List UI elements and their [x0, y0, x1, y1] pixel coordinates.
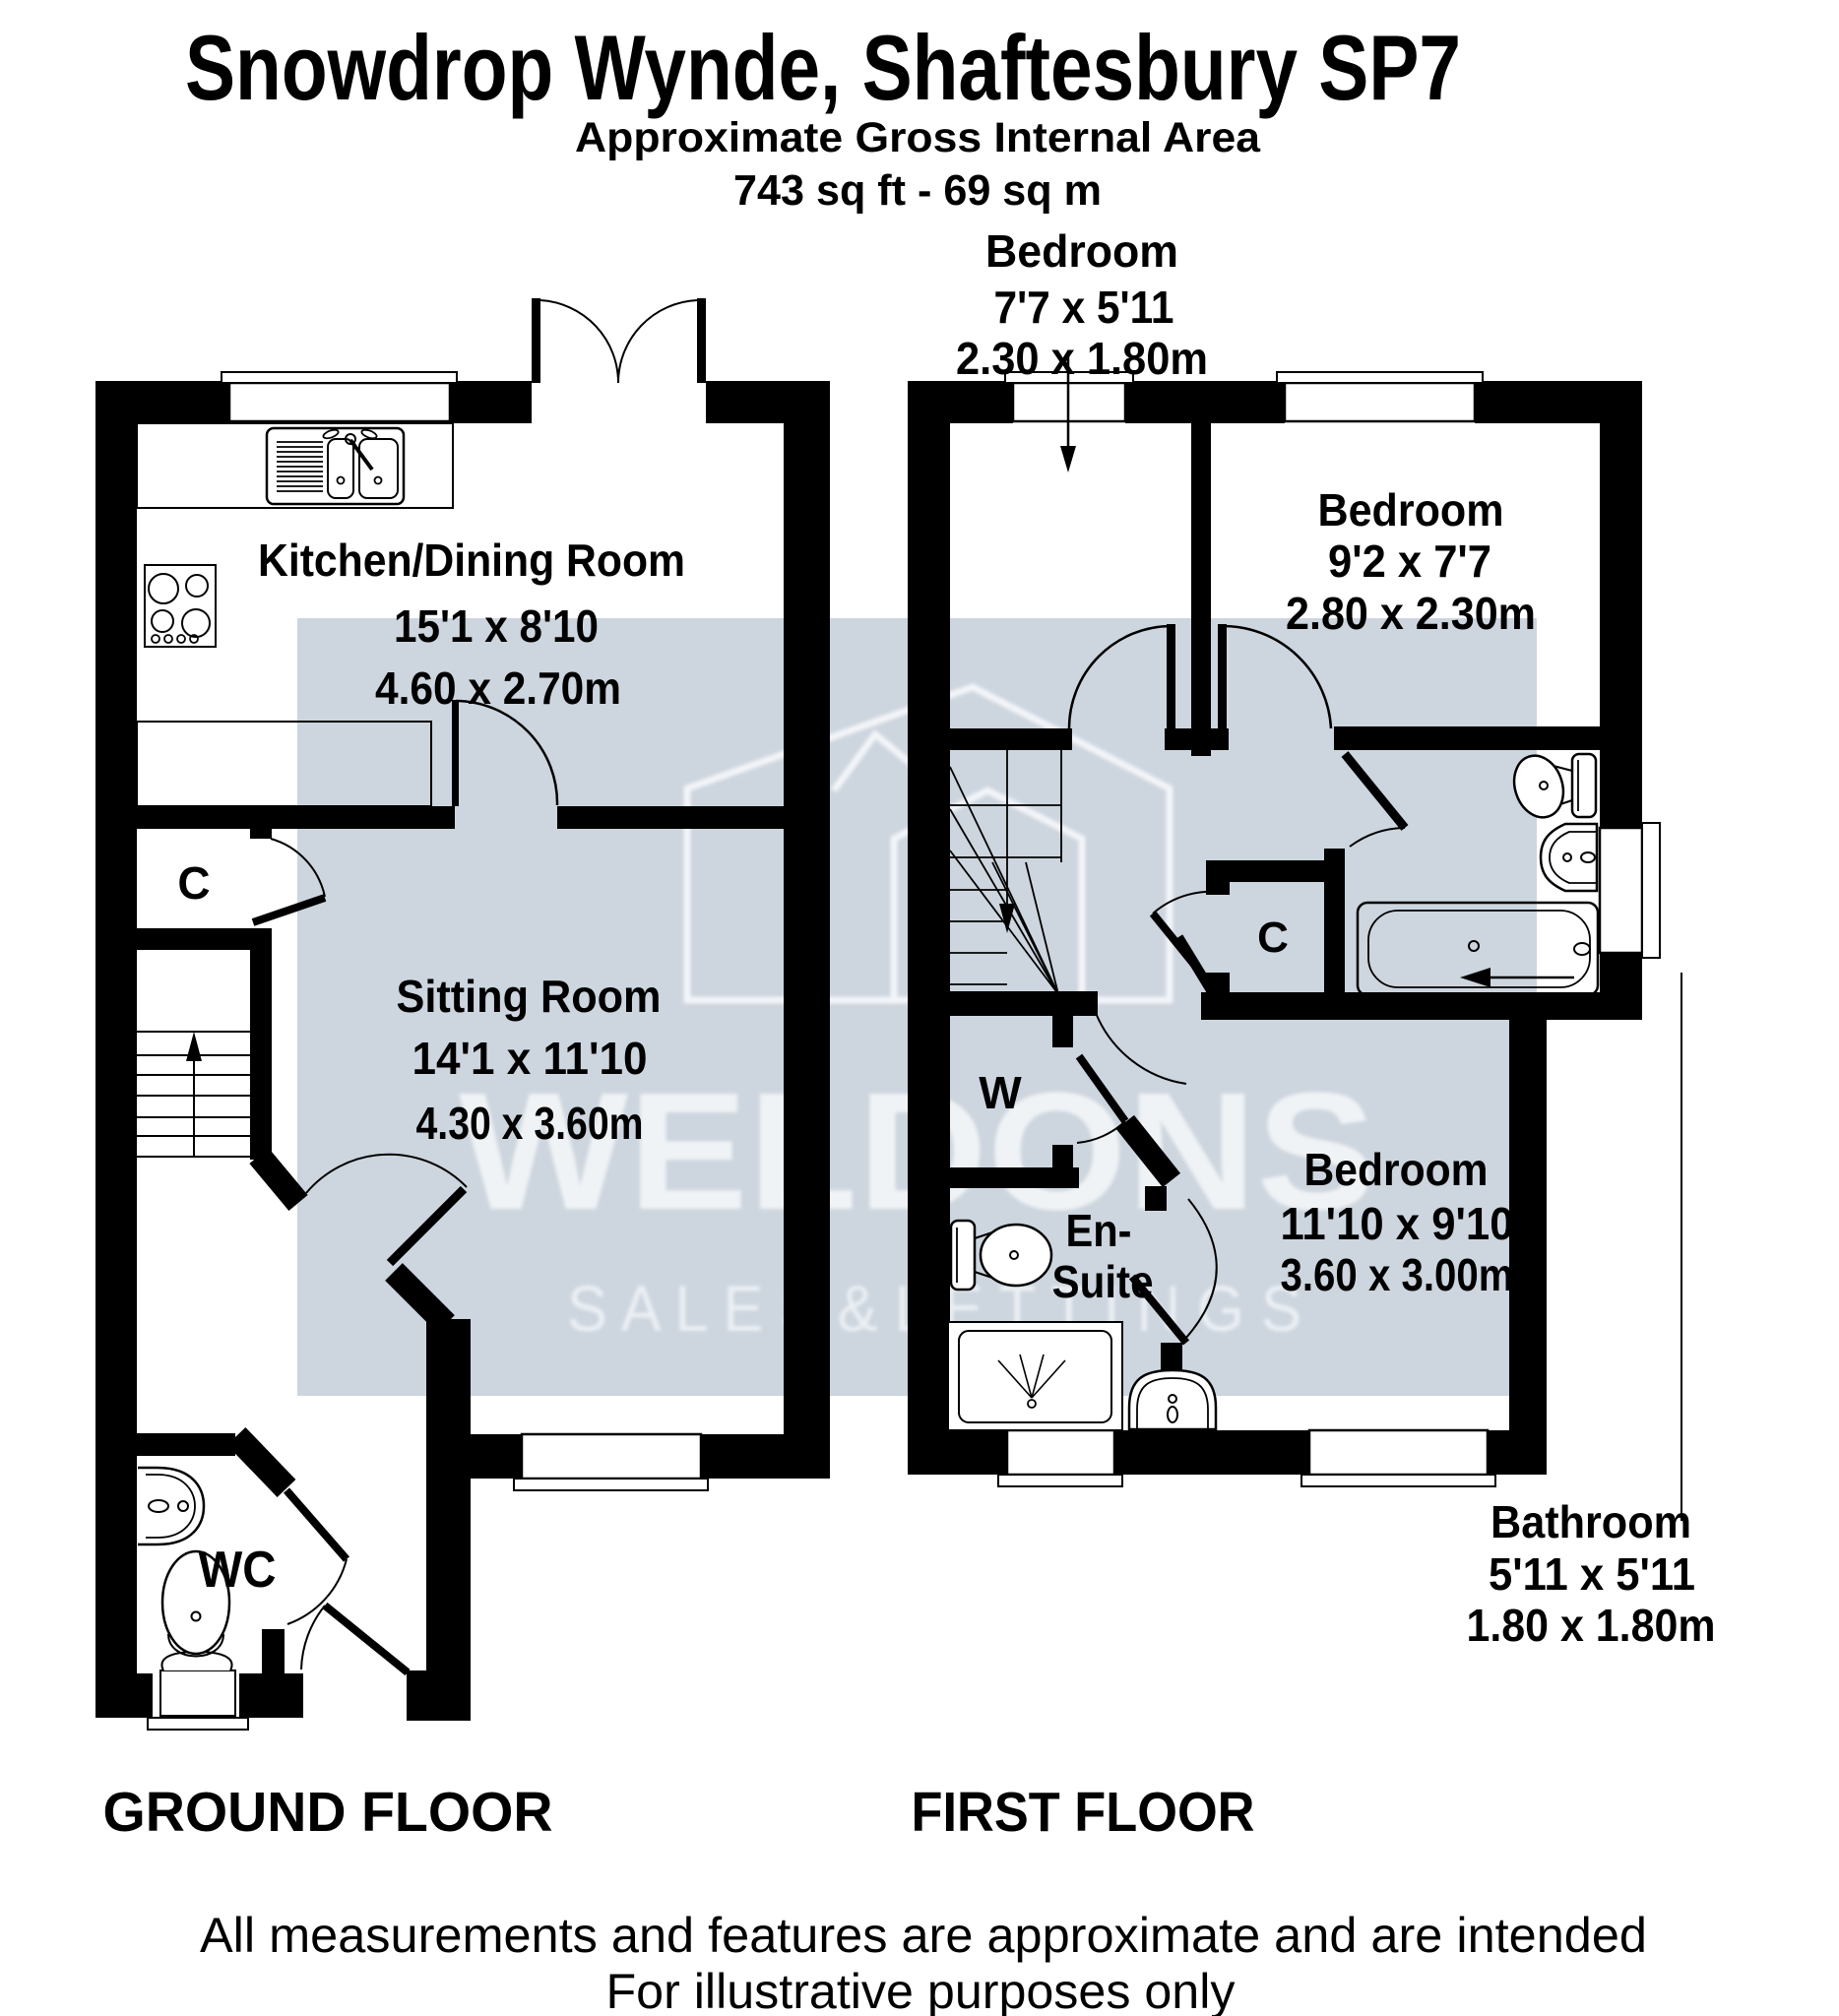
svg-text:2.30 x 1.80m: 2.30 x 1.80m: [956, 333, 1208, 384]
svg-text:GROUND FLOOR: GROUND FLOOR: [103, 1781, 553, 1844]
svg-text:1.80 x 1.80m: 1.80 x 1.80m: [1467, 1600, 1716, 1651]
svg-text:15'1 x 8'10: 15'1 x 8'10: [394, 600, 599, 652]
svg-text:11'10 x 9'10: 11'10 x 9'10: [1281, 1198, 1514, 1249]
svg-text:Bathroom: Bathroom: [1490, 1496, 1691, 1547]
svg-text:Sitting Room: Sitting Room: [397, 971, 662, 1022]
svg-text:W: W: [979, 1067, 1022, 1118]
svg-text:C: C: [1257, 913, 1289, 962]
svg-text:4.60 x 2.70m: 4.60 x 2.70m: [375, 662, 621, 714]
svg-text:En-: En-: [1066, 1205, 1132, 1256]
svg-text:Bedroom: Bedroom: [1304, 1144, 1489, 1195]
svg-text:4.30 x 3.60m: 4.30 x 3.60m: [416, 1098, 644, 1149]
svg-text:9'2 x 7'7: 9'2 x 7'7: [1328, 535, 1491, 587]
svg-text:743 sq ft - 69 sq m: 743 sq ft - 69 sq m: [733, 166, 1102, 215]
svg-text:Suite: Suite: [1052, 1256, 1154, 1307]
svg-text:5'11 x 5'11: 5'11 x 5'11: [1489, 1548, 1695, 1600]
svg-text:Kitchen/Dining Room: Kitchen/Dining Room: [258, 535, 685, 586]
svg-text:Bedroom: Bedroom: [1318, 484, 1504, 535]
svg-text:C: C: [177, 857, 210, 909]
svg-text:All measurements and features: All measurements and features are approx…: [200, 1908, 1647, 1963]
svg-text:Bedroom: Bedroom: [985, 225, 1178, 277]
svg-text:14'1 x 11'10: 14'1 x 11'10: [412, 1033, 648, 1084]
svg-text:For illustrative purposes only: For illustrative purposes only: [606, 1964, 1236, 2016]
svg-text:2.80 x 2.30m: 2.80 x 2.30m: [1286, 588, 1536, 639]
svg-text:3.60 x 3.00m: 3.60 x 3.00m: [1281, 1249, 1514, 1300]
svg-text:FIRST FLOOR: FIRST FLOOR: [912, 1781, 1255, 1844]
svg-text:WC: WC: [199, 1542, 277, 1599]
svg-text:Snowdrop Wynde, Shaftesbury SP: Snowdrop Wynde, Shaftesbury SP7: [185, 16, 1461, 119]
svg-text:7'7 x 5'11: 7'7 x 5'11: [994, 282, 1174, 333]
svg-text:Approximate Gross Internal Are: Approximate Gross Internal Area: [575, 114, 1261, 161]
